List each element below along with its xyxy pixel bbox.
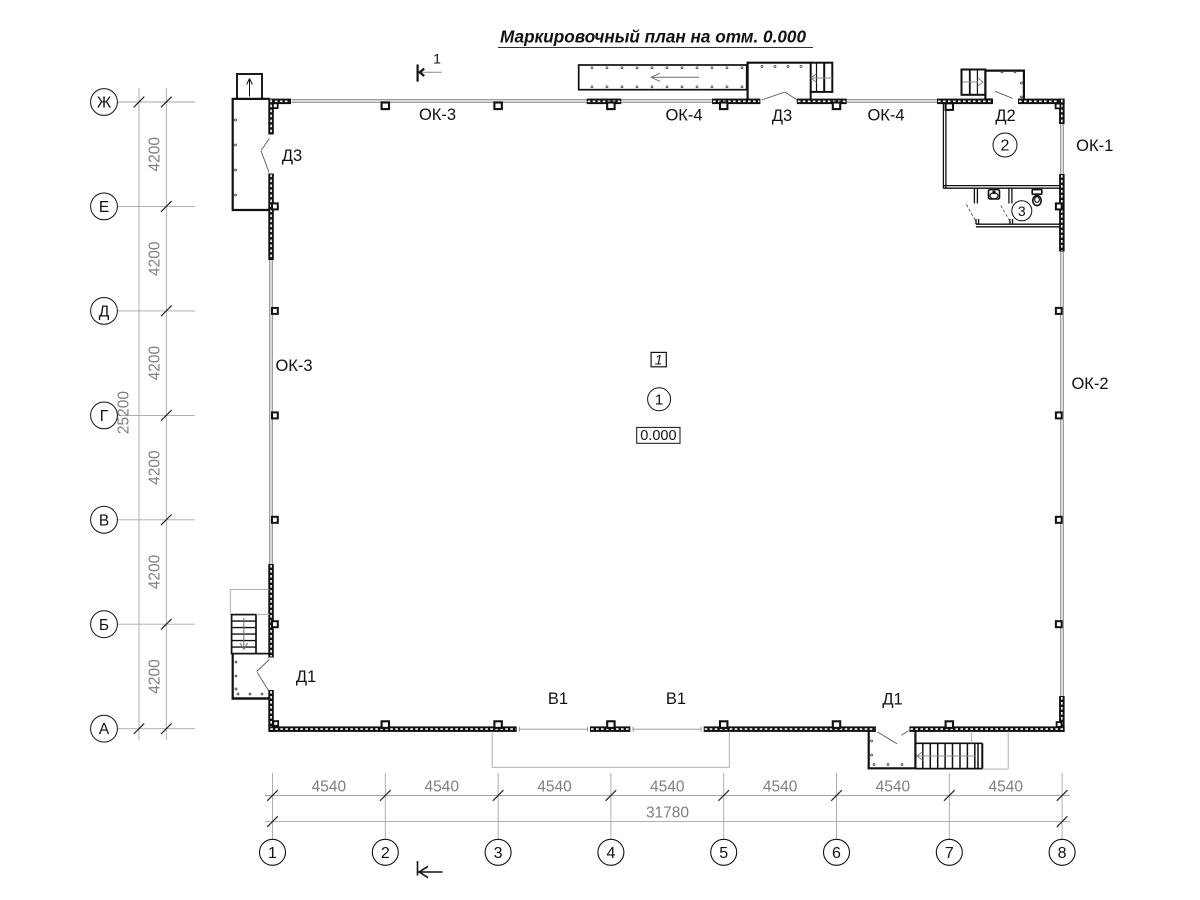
svg-text:1: 1: [433, 51, 441, 67]
svg-text:В1: В1: [666, 690, 686, 708]
svg-text:Д3: Д3: [772, 107, 792, 125]
svg-text:4200: 4200: [147, 554, 164, 589]
svg-text:4540: 4540: [650, 779, 685, 796]
svg-text:ОК-3: ОК-3: [275, 357, 312, 375]
svg-text:ОК-4: ОК-4: [665, 107, 702, 125]
svg-text:Д1: Д1: [882, 691, 902, 709]
svg-text:4540: 4540: [988, 779, 1023, 796]
svg-text:Маркировочный план на отм. 0.0: Маркировочный план на отм. 0.000: [500, 26, 806, 46]
svg-text:4540: 4540: [424, 779, 459, 796]
svg-text:7: 7: [945, 845, 954, 862]
svg-text:6: 6: [832, 845, 841, 862]
svg-text:2: 2: [1001, 138, 1010, 155]
svg-text:3: 3: [494, 845, 503, 862]
svg-text:4200: 4200: [147, 450, 164, 485]
svg-text:Б: Б: [99, 617, 109, 634]
svg-text:Г: Г: [100, 408, 109, 425]
svg-text:4200: 4200: [147, 137, 164, 172]
svg-text:В: В: [99, 512, 109, 529]
svg-text:5: 5: [719, 845, 728, 862]
svg-text:4200: 4200: [147, 659, 164, 694]
svg-text:1: 1: [655, 351, 663, 367]
svg-text:4540: 4540: [537, 779, 572, 796]
svg-text:3: 3: [1018, 203, 1026, 219]
svg-text:Д: Д: [99, 303, 110, 320]
svg-text:1: 1: [655, 392, 663, 409]
svg-text:В1: В1: [548, 690, 568, 708]
svg-text:4200: 4200: [147, 345, 164, 380]
svg-text:Ж: Ж: [97, 95, 112, 112]
svg-text:2: 2: [381, 845, 390, 862]
svg-text:4540: 4540: [876, 779, 911, 796]
svg-text:Е: Е: [99, 199, 109, 216]
svg-text:А: А: [99, 721, 110, 738]
svg-text:4540: 4540: [763, 779, 798, 796]
svg-text:ОК-4: ОК-4: [867, 107, 904, 125]
svg-text:Д3: Д3: [282, 147, 302, 165]
svg-text:ОК-3: ОК-3: [419, 106, 456, 124]
svg-text:ОК-1: ОК-1: [1076, 137, 1113, 155]
svg-text:Д2: Д2: [995, 107, 1015, 125]
svg-text:8: 8: [1058, 845, 1067, 862]
svg-text:4200: 4200: [147, 241, 164, 276]
svg-text:ОК-2: ОК-2: [1071, 375, 1108, 393]
svg-text:Д1: Д1: [296, 668, 316, 686]
svg-text:4540: 4540: [312, 779, 347, 796]
svg-text:31780: 31780: [646, 805, 689, 822]
svg-text:25200: 25200: [116, 391, 133, 434]
svg-text:4: 4: [606, 845, 615, 862]
svg-text:0.000: 0.000: [640, 428, 676, 444]
svg-text:1: 1: [268, 845, 277, 862]
